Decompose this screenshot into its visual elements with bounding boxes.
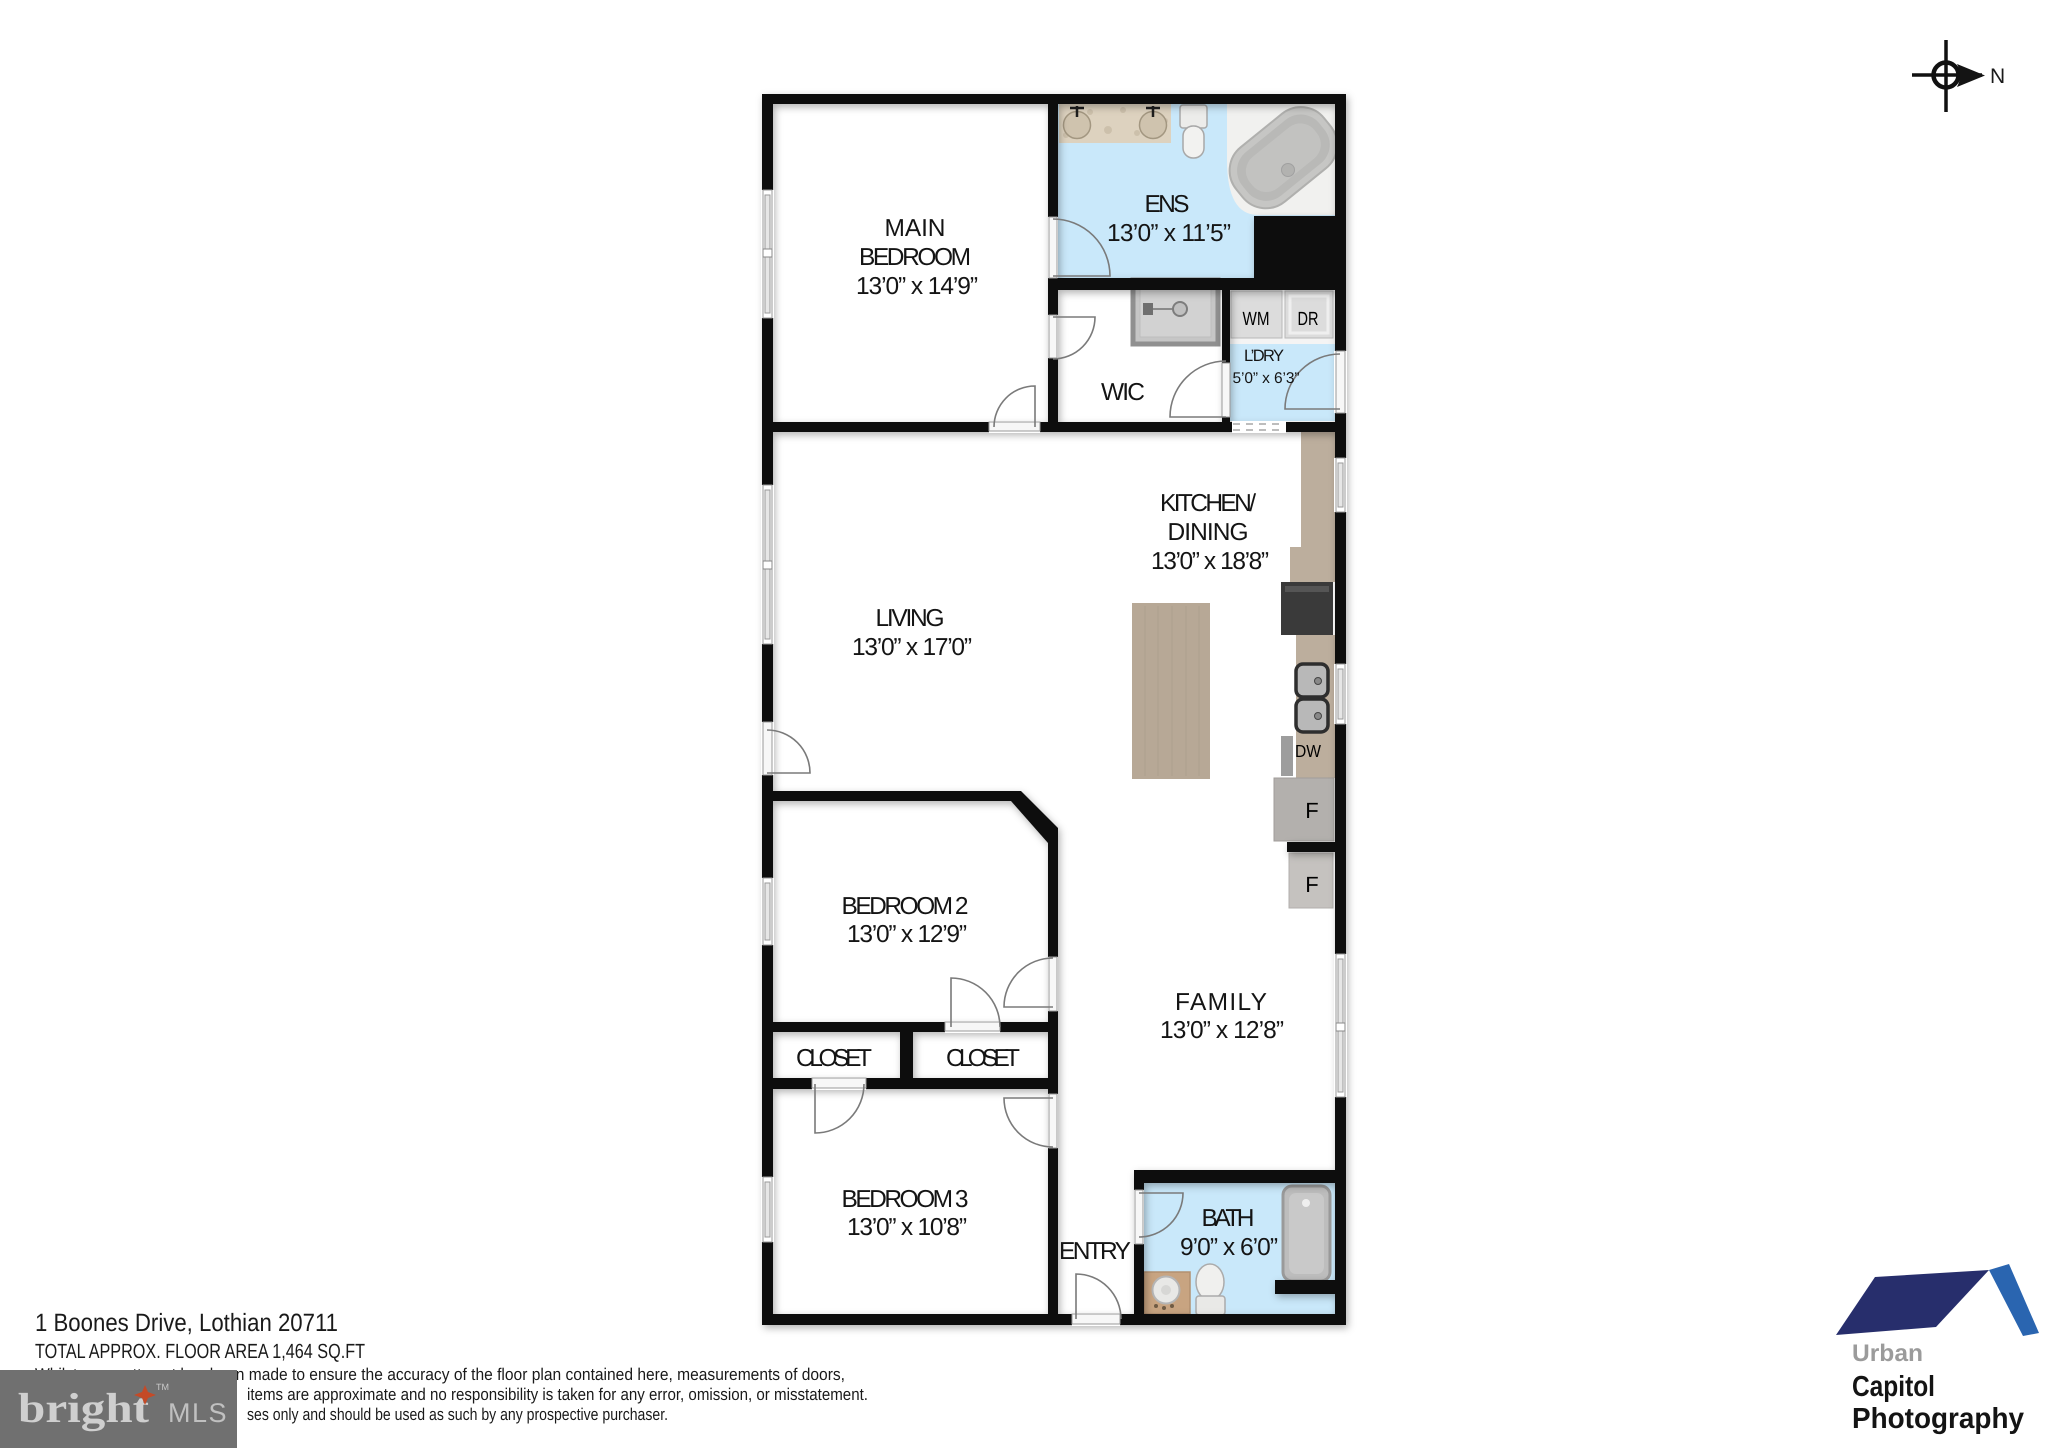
svg-text:BEDROOM: BEDROOM xyxy=(859,244,971,271)
svg-text:13’0” x 10’8”: 13’0” x 10’8” xyxy=(847,1214,967,1241)
svg-text:13’0” x 14’9”: 13’0” x 14’9” xyxy=(856,273,978,300)
svg-text:Capitol: Capitol xyxy=(1852,1371,1935,1403)
svg-text:L’DRY: L’DRY xyxy=(1244,347,1284,365)
svg-text:Urban: Urban xyxy=(1852,1340,1923,1367)
svg-text:N: N xyxy=(1990,65,2005,88)
svg-text:BEDROOM 3: BEDROOM 3 xyxy=(842,1186,969,1213)
svg-text:TOTAL APPROX. FLOOR AREA 1,464: TOTAL APPROX. FLOOR AREA 1,464 SQ.FT xyxy=(35,1340,365,1363)
svg-text:items are approximate and no r: items are approximate and no responsibil… xyxy=(247,1385,868,1404)
svg-text:13’0” x 17’0”: 13’0” x 17’0” xyxy=(852,634,972,661)
svg-text:9’0” x 6’0”: 9’0” x 6’0” xyxy=(1180,1234,1278,1261)
svg-text:LIVING: LIVING xyxy=(876,605,945,632)
svg-text:13’0” x 12’8”: 13’0” x 12’8” xyxy=(1160,1017,1284,1044)
svg-text:DR: DR xyxy=(1298,309,1319,330)
svg-text:BATH: BATH xyxy=(1202,1205,1255,1232)
svg-text:F: F xyxy=(1305,872,1318,897)
svg-text:DW: DW xyxy=(1295,741,1321,761)
svg-text:MLS: MLS xyxy=(168,1398,228,1428)
svg-text:CLOSET: CLOSET xyxy=(946,1045,1020,1072)
svg-text:13’0” x 12’9”: 13’0” x 12’9” xyxy=(847,921,967,948)
svg-text:13’0” x 18’8”: 13’0” x 18’8” xyxy=(1151,548,1269,575)
svg-text:1 Boones Drive, Lothian 20711: 1 Boones Drive, Lothian 20711 xyxy=(35,1309,338,1337)
svg-text:MAIN: MAIN xyxy=(885,215,946,242)
svg-text:ENTRY: ENTRY xyxy=(1059,1238,1131,1265)
svg-text:F: F xyxy=(1305,798,1318,823)
svg-text:13’0” x 11’5”: 13’0” x 11’5” xyxy=(1107,220,1231,247)
svg-text:WM: WM xyxy=(1243,309,1270,330)
svg-text:TM: TM xyxy=(156,1382,169,1392)
svg-text:KITCHEN/: KITCHEN/ xyxy=(1160,490,1256,517)
svg-text:BEDROOM 2: BEDROOM 2 xyxy=(842,893,969,920)
svg-text:WIC: WIC xyxy=(1101,379,1145,406)
svg-text:ENS: ENS xyxy=(1145,191,1190,218)
svg-text:5’0” x 6’3”: 5’0” x 6’3” xyxy=(1233,370,1300,387)
svg-text:ses only and should be used as: ses only and should be used as such by a… xyxy=(247,1405,668,1424)
svg-text:DINING: DINING xyxy=(1168,519,1249,546)
svg-text:CLOSET: CLOSET xyxy=(796,1045,872,1072)
svg-text:bright: bright xyxy=(18,1386,149,1432)
svg-text:Photography: Photography xyxy=(1852,1403,2024,1435)
